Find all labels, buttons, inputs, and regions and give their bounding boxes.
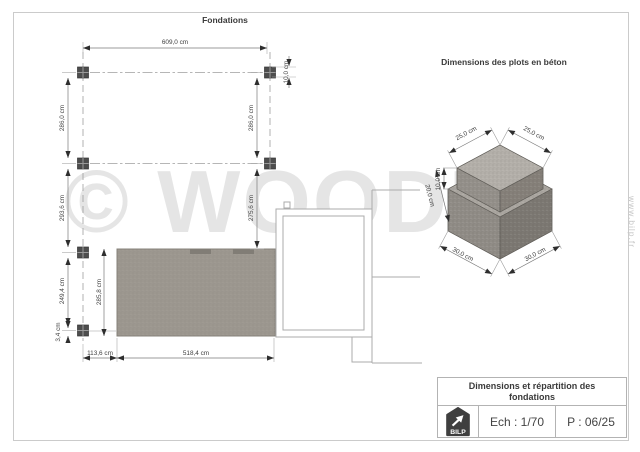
bilp-logo: BILP <box>444 407 472 437</box>
dim-terrace-depth: 285,8 cm <box>96 279 103 305</box>
bilp-logo-text: BILP <box>450 429 466 436</box>
plot-marker <box>78 158 89 169</box>
dim-row4-left: 3,4 cm <box>55 322 62 341</box>
dim-bottom-offset: 113,6 cm <box>87 350 113 357</box>
dim-cap-height: 10,0 cm <box>435 168 442 191</box>
scale-value: Ech : 1/70 <box>479 406 556 438</box>
plot-marker <box>78 325 89 336</box>
block-diagram-title: Dimensions des plots en béton <box>414 57 594 67</box>
dim-base-left: 30,0 cm <box>451 246 474 263</box>
bilp-logo-cell: BILP <box>438 406 479 438</box>
terrace <box>117 249 275 336</box>
title-block: Dimensions et répartition des fondations… <box>437 377 627 438</box>
dim-bottom-width: 518,4 cm <box>183 350 209 357</box>
terrace-notch <box>190 249 211 254</box>
dim-row1-right: 286,0 cm <box>248 105 255 131</box>
page-number: P : 06/25 <box>556 406 626 438</box>
plot-marker <box>265 67 276 78</box>
building-outline <box>276 190 422 363</box>
concrete-block-drawing <box>448 145 552 259</box>
dim-row3-left: 249,4 cm <box>59 278 66 304</box>
plot-marker <box>265 158 276 169</box>
dim-row2-right: 275,6 cm <box>248 195 255 221</box>
dim-row1-left: 286,0 cm <box>59 105 66 131</box>
watermark-site: www.bilp.fr <box>627 196 637 248</box>
plan-title: Fondations <box>160 15 290 25</box>
dim-row2-left: 293,6 cm <box>59 195 66 221</box>
plot-marker <box>78 67 89 78</box>
plot-marker <box>78 247 89 258</box>
dim-plot-size: 10,0 cm <box>283 61 290 84</box>
title-block-title: Dimensions et répartition des fondations <box>438 378 626 406</box>
dim-total-width: 609,0 cm <box>162 39 188 46</box>
terrace-notch <box>233 249 254 254</box>
dim-base-height: 20,0 cm <box>423 184 435 208</box>
drawing-sheet: © WOODIY Fondations Dimensions des plots… <box>0 0 640 452</box>
